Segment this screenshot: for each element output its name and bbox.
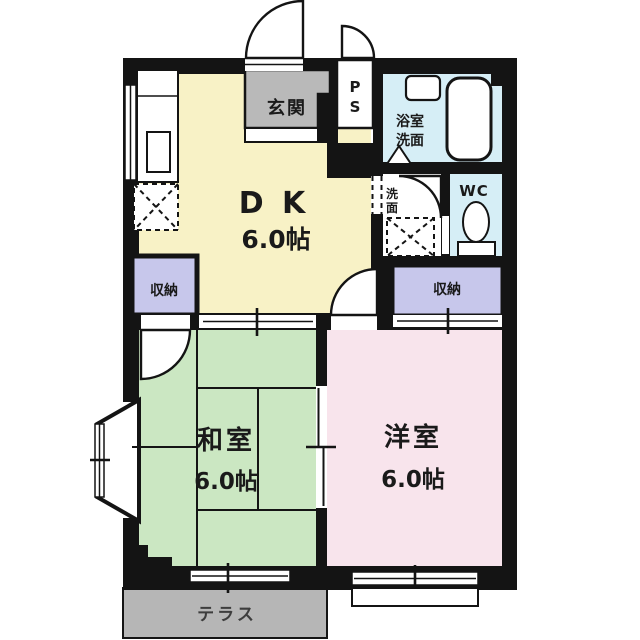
genkan-step bbox=[245, 128, 318, 142]
label-washitsu: 和室 bbox=[197, 425, 255, 456]
bath-sink bbox=[406, 76, 440, 100]
label-youshitsu: 洋室 bbox=[384, 422, 442, 453]
label-dk: D K bbox=[239, 186, 310, 221]
dk-senmen-opening bbox=[371, 176, 383, 214]
label-genkan: 玄関 bbox=[267, 97, 307, 119]
washer-space bbox=[387, 218, 434, 256]
refrigerator-space bbox=[134, 184, 178, 230]
label-senmen-line2: 面 bbox=[386, 201, 398, 215]
label-storage-right: 収納 bbox=[433, 281, 461, 298]
label-storage-left: 収納 bbox=[150, 282, 178, 299]
label-bath-line1: 浴室 bbox=[396, 113, 424, 130]
wc-door-gap bbox=[442, 216, 449, 254]
bay-window bbox=[90, 400, 139, 521]
label-washitsu-size: 6.0帖 bbox=[194, 469, 258, 495]
floor-plan: D K 6.0帖 和室 6.0帖 洋室 6.0帖 玄関 P S 浴室 洗面 洗 … bbox=[0, 0, 640, 640]
ps-door-swing bbox=[342, 26, 374, 58]
label-youshitsu-size: 6.0帖 bbox=[381, 467, 445, 493]
label-bath-line2: 洗面 bbox=[396, 132, 424, 149]
label-senmen-line1: 洗 bbox=[386, 186, 398, 201]
label-ps-bottom: S bbox=[350, 98, 361, 116]
kitchen-sink bbox=[147, 132, 170, 172]
floor-plan-page: D K 6.0帖 和室 6.0帖 洋室 6.0帖 玄関 P S 浴室 洗面 洗 … bbox=[0, 0, 640, 640]
label-terrace: テラス bbox=[197, 605, 257, 625]
entrance-door-swing bbox=[246, 1, 303, 58]
closet-door-opening bbox=[141, 315, 190, 330]
label-dk-size: 6.0帖 bbox=[241, 225, 310, 254]
label-wc: WC bbox=[459, 182, 489, 200]
youshitsu-step bbox=[352, 588, 478, 606]
label-ps-top: P bbox=[350, 78, 361, 96]
bathtub bbox=[447, 78, 491, 160]
